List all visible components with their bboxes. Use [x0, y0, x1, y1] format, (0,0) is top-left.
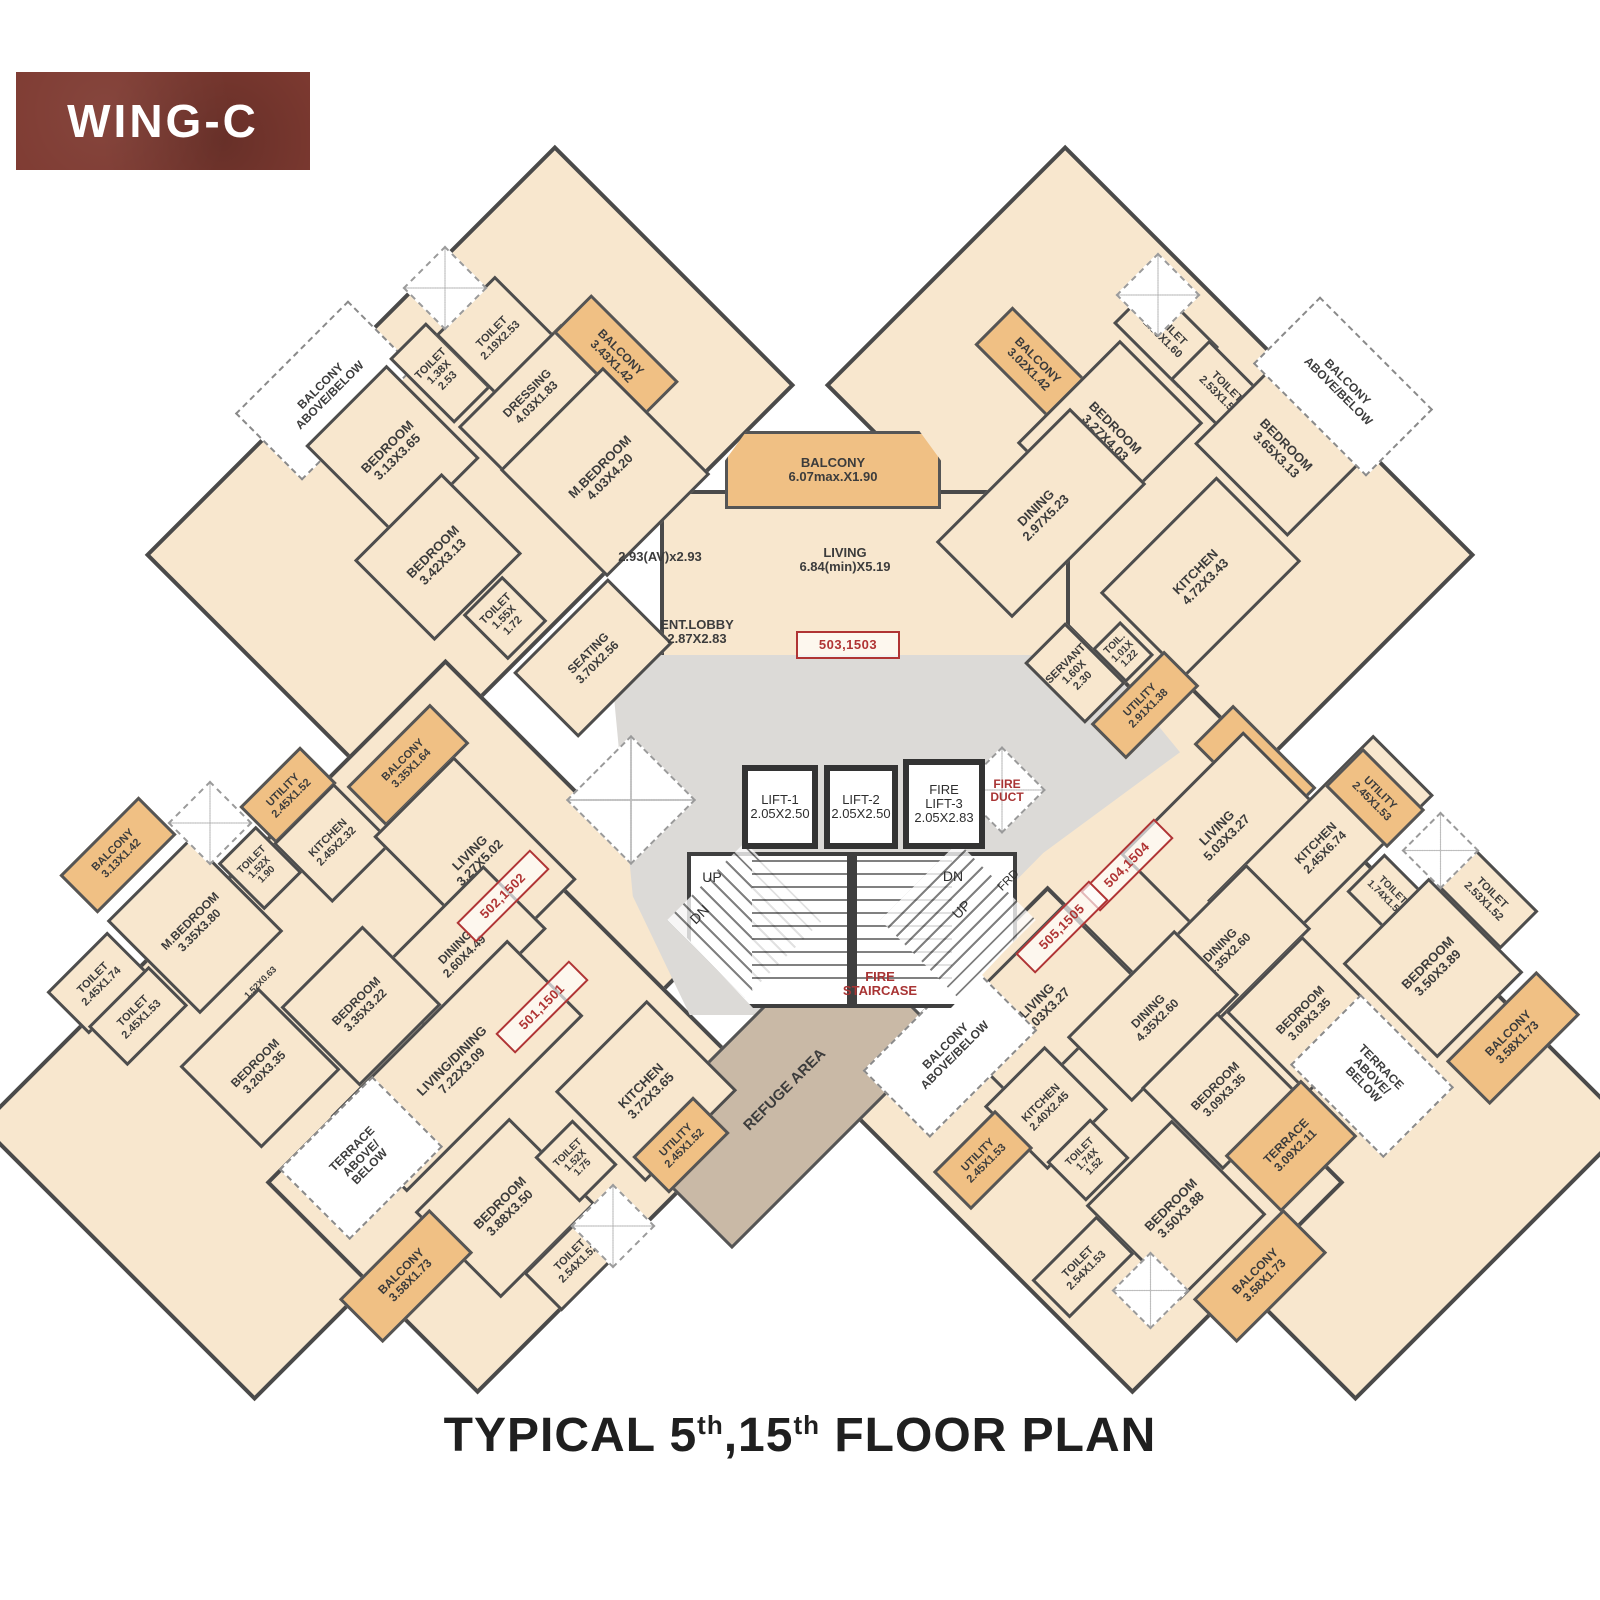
- room-up1: UP: [690, 869, 734, 887]
- floor-plan-page: WING-C BALCONY ABOVE/BELOWBEDROOM 3.13X3…: [0, 0, 1600, 1600]
- title-part: ,15: [724, 1409, 794, 1462]
- room-lift1: LIFT-1 2.05X2.50: [742, 765, 818, 849]
- room-lift3: FIRE LIFT-3 2.05X2.83: [903, 759, 985, 849]
- floor-plan-title: TYPICAL 5th,15th FLOOR PLAN: [0, 1408, 1600, 1463]
- floor-plan-drawing: BALCONY ABOVE/BELOWBEDROOM 3.13X3.65TOIL…: [0, 0, 1600, 1600]
- room-label: FIRE STAIRCASE: [815, 966, 945, 1002]
- title-sup: th: [697, 1410, 724, 1440]
- room-fireduct: FIRE DUCT: [975, 771, 1039, 811]
- room-label: LIVING 6.84(min)X5.19: [735, 540, 955, 580]
- room-c-balc: BALCONY 6.07max.X1.90: [725, 431, 941, 509]
- room-label: 2.93(AV)x2.93: [585, 549, 735, 565]
- room-c-living: LIVING 6.84(min)X5.19: [735, 540, 955, 580]
- room-label: LIFT-1 2.05X2.50: [748, 771, 812, 843]
- title-sup: th: [793, 1410, 820, 1440]
- room-label: FIRE LIFT-3 2.05X2.83: [909, 765, 979, 843]
- room-label: 503,1503: [798, 633, 898, 657]
- room-label: BALCONY 6.07max.X1.90: [728, 434, 938, 506]
- room-c-entlobby: ENT.LOBBY 2.87X2.83: [637, 610, 757, 654]
- room-tl-note: 2.93(AV)x2.93: [585, 549, 735, 565]
- room-label: LIFT-2 2.05X2.50: [830, 771, 892, 843]
- room-label: DN: [931, 868, 975, 886]
- title-part: FLOOR PLAN: [820, 1409, 1156, 1462]
- room-lift2: LIFT-2 2.05X2.50: [824, 765, 898, 849]
- room-dn1: DN: [931, 868, 975, 886]
- room-label: ENT.LOBBY 2.87X2.83: [637, 610, 757, 654]
- room-c-tag503: 503,1503: [796, 631, 900, 659]
- title-part: TYPICAL 5: [444, 1409, 698, 1462]
- room-firestair: FIRE STAIRCASE: [815, 966, 945, 1002]
- room-label: FIRE DUCT: [975, 771, 1039, 811]
- room-label: UP: [690, 869, 734, 887]
